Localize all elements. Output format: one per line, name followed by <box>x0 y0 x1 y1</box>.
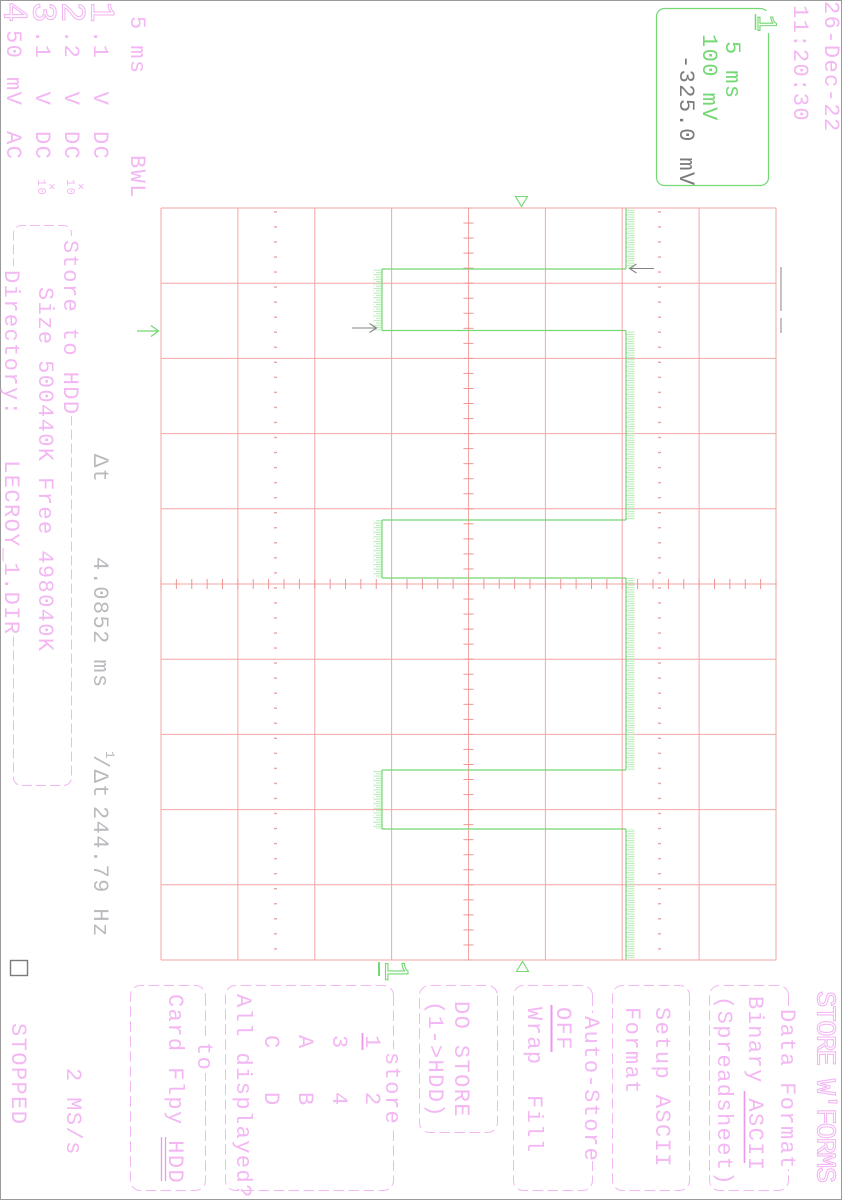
svg-text:V: V <box>29 77 54 106</box>
svg-text:V: V <box>58 77 83 106</box>
svg-text:store: store <box>379 1052 404 1125</box>
svg-text:1: 1 <box>749 15 780 33</box>
svg-text:5 ms: 5 ms <box>124 16 149 75</box>
svg-text:244.79 Hz: 244.79 Hz <box>87 806 112 938</box>
svg-text:V: V <box>87 77 112 106</box>
svg-text:4.0852 ms: 4.0852 ms <box>87 557 112 689</box>
svg-text:Format: Format <box>619 1007 644 1095</box>
svg-text:D: D <box>258 1092 283 1107</box>
svg-text:BWL: BWL <box>124 155 149 199</box>
svg-text:Setup ASCII: Setup ASCII <box>649 1007 674 1168</box>
svg-text:11:20:30: 11:20:30 <box>787 5 812 122</box>
svg-text:Binary ASCII: Binary ASCII <box>742 996 767 1171</box>
svg-text:Wrap: Wrap <box>521 1007 546 1066</box>
svg-text:3: 3 <box>326 1035 351 1050</box>
svg-text:.1: .1 <box>87 30 112 59</box>
svg-text:DC: DC <box>58 131 83 160</box>
svg-text:5 ms: 5 ms <box>719 41 744 100</box>
svg-text:2 MS/s: 2 MS/s <box>60 1068 85 1156</box>
svg-text:DC: DC <box>29 131 54 160</box>
svg-text:(1->HDD): (1->HDD) <box>422 1001 447 1118</box>
svg-text:.1: .1 <box>29 30 54 59</box>
svg-text:50: 50 <box>0 30 25 59</box>
svg-text:mV: mV <box>0 77 25 106</box>
svg-text:1: 1 <box>375 961 413 983</box>
svg-text:to: to <box>191 1042 216 1071</box>
svg-text:Size 500440K Free 498040K: Size 500440K Free 498040K <box>32 287 57 653</box>
svg-text:DC: DC <box>87 131 112 160</box>
svg-text:AC: AC <box>0 131 25 160</box>
svg-text:Data Format: Data Format <box>774 1009 799 1170</box>
svg-text:.2: .2 <box>58 30 83 59</box>
svg-text:(Spreadsheet): (Spreadsheet) <box>711 996 736 1186</box>
svg-text:Auto-Store: Auto-Store <box>578 1016 603 1162</box>
svg-text:Δt: Δt <box>87 454 112 483</box>
svg-text:Fill: Fill <box>521 1095 546 1154</box>
svg-text:Store to HDD: Store to HDD <box>57 240 82 415</box>
svg-text:A: A <box>292 1035 317 1050</box>
svg-text:OFF: OFF <box>550 1007 575 1051</box>
svg-text:100 mV: 100 mV <box>696 34 721 122</box>
svg-text:All displayed?: All displayed? <box>230 994 255 1199</box>
svg-text:/Δt: /Δt <box>87 755 112 799</box>
svg-text:2: 2 <box>359 1092 384 1107</box>
svg-text:STORE W'FORMS: STORE W'FORMS <box>808 991 838 1182</box>
svg-text:STOPPED: STOPPED <box>5 1023 30 1125</box>
svg-text:26-Dec-22: 26-Dec-22 <box>818 1 842 133</box>
svg-text:-325.0 mV: -325.0 mV <box>673 55 698 187</box>
svg-text:4: 4 <box>0 2 32 24</box>
svg-text:10: 10 <box>63 179 77 196</box>
svg-text:4: 4 <box>326 1092 351 1107</box>
svg-text:C: C <box>258 1035 283 1050</box>
svg-text:DO STORE: DO STORE <box>448 1001 473 1118</box>
svg-text:10: 10 <box>34 179 48 196</box>
svg-text:Directory: LECROY_1.DIR: Directory: LECROY_1.DIR <box>0 270 23 636</box>
svg-text:B: B <box>292 1092 317 1107</box>
